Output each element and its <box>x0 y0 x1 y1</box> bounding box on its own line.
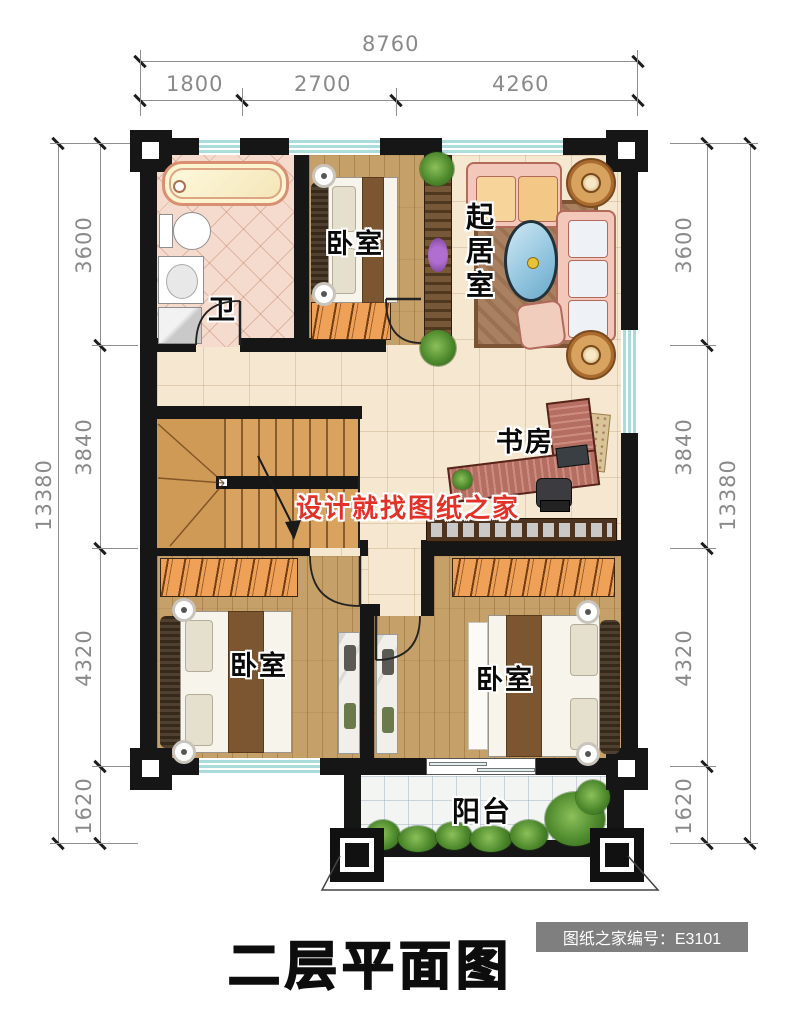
toilet-tank <box>159 214 173 248</box>
partition-flowers <box>428 238 448 272</box>
window-top-bathroom <box>197 138 242 155</box>
dim-ext <box>242 88 243 116</box>
wall-bath-bedroom-divider <box>294 155 309 352</box>
bedroom-top-wardrobe <box>311 302 391 340</box>
living-room-label: 起居室 <box>458 202 498 304</box>
wall-left <box>140 138 157 775</box>
bedroom-bl-dresser <box>338 632 360 754</box>
corner-inner <box>618 142 635 159</box>
partition-plant-top <box>420 152 454 186</box>
lamp-center <box>585 751 591 757</box>
page-title: 二层平面图 <box>228 924 513 999</box>
dim-left-seg-3: 1620 <box>72 770 96 842</box>
dim-left-seg-1: 3840 <box>72 411 96 483</box>
side-table-bottom <box>566 330 616 380</box>
watermark-text: 设计就找图纸之家 <box>296 488 520 525</box>
coffee-table-decor <box>527 257 539 269</box>
bedroom-bl-label: 卧室 <box>230 644 288 683</box>
dim-top-total: 8760 <box>362 32 419 56</box>
window-top-living <box>440 138 565 155</box>
dresser-item <box>344 703 356 729</box>
bedroom-br-headboard <box>600 620 620 754</box>
bedroom-br-pillow <box>570 624 598 676</box>
corner-inner <box>142 760 159 777</box>
desk-keyboard <box>555 444 589 468</box>
vanity <box>158 256 204 304</box>
dim-ext <box>637 50 638 116</box>
dim-top-seg-line <box>140 100 638 101</box>
dim-ext <box>396 88 397 116</box>
balcony-plant <box>576 780 610 814</box>
dim-right-total: 13380 <box>716 459 740 531</box>
wall-bedroom-top-bottom <box>309 338 386 352</box>
bedside-lamp <box>576 600 600 624</box>
corner-inner <box>618 760 635 777</box>
side-table-inner <box>581 173 601 193</box>
study-monitor <box>540 500 570 512</box>
bedroom-br-dresser <box>376 634 398 754</box>
dresser-item <box>382 649 394 675</box>
dim-ext <box>50 143 138 144</box>
bathtub <box>162 161 289 206</box>
wall-bedrooms-top-right <box>421 540 621 556</box>
wall-bath-bottom <box>240 338 294 352</box>
bathroom-label: 卫 <box>208 288 237 327</box>
lamp-center <box>585 609 591 615</box>
dim-right-seg-2: 4320 <box>672 622 696 694</box>
stairs-rail-notch <box>219 479 227 486</box>
balcony-plant <box>510 820 548 850</box>
bedroom-bl-pillow <box>185 694 213 746</box>
dim-ext <box>670 143 758 144</box>
dim-left-seg-0: 3600 <box>72 209 96 281</box>
dim-ext <box>670 345 716 346</box>
window-top-bedroom <box>287 138 382 155</box>
wall-bedrooms-top-mid <box>360 540 368 556</box>
corner-block-tr <box>606 130 648 172</box>
wall-right <box>621 138 638 775</box>
corner-block-br <box>606 748 648 790</box>
balcony-pier-right <box>590 828 644 882</box>
wall-hall-strip-right <box>421 540 434 616</box>
pier-inner-frame <box>600 838 634 872</box>
balcony-sliding-door <box>426 758 536 775</box>
dim-ext <box>92 548 138 549</box>
pier-inner-frame <box>340 838 374 872</box>
dim-ext <box>92 345 138 346</box>
dim-top-seg-2: 4260 <box>492 72 549 96</box>
stairs-winder <box>157 419 224 548</box>
dim-ext <box>50 843 138 844</box>
dim-top-total-line <box>140 61 638 62</box>
bedside-lamp <box>172 598 196 622</box>
sofa-right <box>556 210 616 342</box>
bedside-lamp <box>312 164 336 188</box>
sofa-cushion <box>518 176 558 222</box>
bedroom-bl-headboard <box>160 616 180 748</box>
dim-ext <box>670 548 716 549</box>
bathtub-inner <box>169 168 282 199</box>
dim-right-seg-1: 3840 <box>672 411 696 483</box>
dim-top-seg-1: 2700 <box>294 72 351 96</box>
sofa-cushion <box>568 260 608 298</box>
sliding-panel <box>477 768 535 772</box>
dim-right-seg-3: 1620 <box>672 770 696 842</box>
lamp-center <box>321 291 327 297</box>
partition-plant-bottom <box>420 330 456 366</box>
corner-block-tl <box>130 130 172 172</box>
dim-left-seg-line <box>100 143 101 844</box>
dim-ext <box>140 50 141 116</box>
bedroom-br-label: 卧室 <box>476 658 534 697</box>
dim-right-seg-0: 3600 <box>672 209 696 281</box>
bedroom-bl-wardrobe <box>160 558 298 597</box>
balcony-label: 阳台 <box>452 790 512 830</box>
dresser-item <box>344 645 356 671</box>
drawing-number-badge: 图纸之家编号：E3101 <box>536 922 748 952</box>
bedroom-br-wardrobe <box>452 558 615 597</box>
bedside-lamp <box>312 282 336 306</box>
dim-ext <box>670 843 758 844</box>
sliding-panel <box>429 762 487 766</box>
dim-left-seg-2: 4320 <box>72 622 96 694</box>
lamp-center <box>181 607 187 613</box>
dim-right-seg-line <box>707 143 708 844</box>
ottoman-seat <box>515 299 567 351</box>
side-table-inner <box>581 345 601 365</box>
balcony-pier-left <box>330 828 384 882</box>
dim-right-total-line <box>750 143 751 844</box>
dim-ext <box>670 766 716 767</box>
bedside-lamp <box>172 740 196 764</box>
toilet-bowl <box>173 212 211 250</box>
lamp-center <box>181 749 187 755</box>
wall-stairs-top <box>157 406 362 419</box>
balcony-plant <box>398 826 438 852</box>
lamp-center <box>321 173 327 179</box>
wall-bedroom-divider <box>360 612 374 758</box>
coffee-table <box>504 220 558 302</box>
dim-left-total: 13380 <box>32 459 56 531</box>
bathtub-faucet <box>173 180 186 193</box>
side-table-top <box>566 158 616 208</box>
window-bottom-bedroom <box>197 758 322 775</box>
floor-plan-page: 8760 1800 2700 4260 13380 3600 3840 4320… <box>0 0 800 1009</box>
corner-inner <box>142 142 159 159</box>
study-label: 书房 <box>496 420 554 459</box>
bedside-lamp <box>576 742 600 766</box>
dresser-item <box>382 707 394 733</box>
stairs-edge-line <box>358 419 360 548</box>
window-right-study <box>621 328 638 435</box>
dim-left-total-line <box>58 143 59 844</box>
corner-block-bl <box>130 748 172 790</box>
bedroom-bl-pillow <box>185 620 213 672</box>
sofa-cushion <box>568 220 608 258</box>
dim-top-seg-0: 1800 <box>166 72 223 96</box>
bedroom-top-label: 卧室 <box>326 222 384 261</box>
vanity-basin <box>166 264 198 299</box>
bookshelf-books <box>431 523 612 537</box>
stairs-upper-run <box>224 419 360 477</box>
shower-unit <box>158 307 202 344</box>
